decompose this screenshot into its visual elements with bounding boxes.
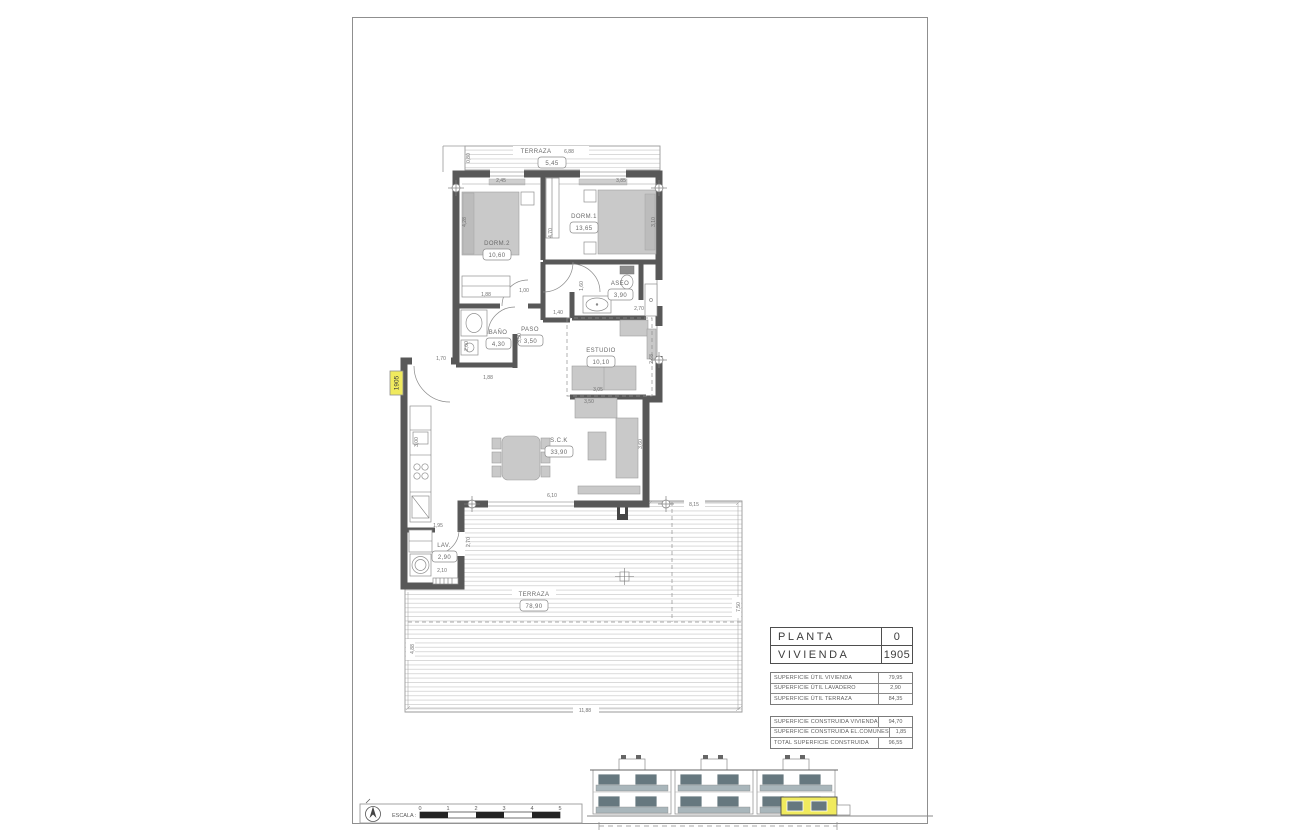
room-label-estudio: ESTUDIO — [586, 348, 615, 354]
scale-bar: ESCALA : 0 1 2 3 4 5 — [360, 799, 582, 823]
room-area: 3,50 — [524, 339, 538, 345]
dimension-label: 1,70 — [436, 356, 446, 362]
dimension-label: 1,60 — [579, 281, 585, 291]
row-value: 84,35 — [878, 694, 912, 704]
room-area: 78,90 — [525, 604, 542, 610]
dimension-label: 8,15 — [689, 502, 699, 508]
row-label: TOTAL SUPERFICIE CONSTRUIDA — [771, 740, 878, 746]
row-label: SUPERFICIE ÚTIL VIVIENDA — [771, 675, 878, 681]
room-area: 4,30 — [492, 342, 506, 348]
surface-table-constructed: SUPERFICIE CONSTRUIDA VIVIENDA 94,70 SUP… — [770, 716, 913, 749]
dimension-label: 3,50 — [584, 399, 594, 405]
scale-tick: 5 — [558, 806, 561, 812]
room-area: 10,60 — [488, 253, 505, 259]
row-value: 96,55 — [878, 738, 912, 748]
window — [490, 168, 524, 179]
dimension-label: 7,50 — [736, 602, 742, 612]
dimension-label: 4,70 — [548, 228, 554, 238]
north-arrow-icon — [366, 799, 381, 822]
dimension-label: 4,88 — [410, 644, 416, 654]
dimension-label: 3,00 — [414, 437, 420, 447]
room-area: 2,90 — [438, 555, 452, 561]
title-table: PLANTA 0 VIVIENDA 1905 — [770, 627, 913, 664]
row-value: 79,95 — [878, 673, 912, 683]
room-area: 5,45 — [545, 161, 559, 167]
title-label: PLANTA — [771, 631, 881, 643]
dimension-label: 11,88 — [579, 708, 591, 714]
room-label-terraza-top: TERRAZA — [521, 149, 552, 155]
room-label-terraza-main: TERRAZA — [519, 592, 550, 598]
dimension-label: 1,40 — [553, 310, 563, 316]
room-label-dorm2: DORM.2 — [484, 241, 510, 247]
dimension-label: 3,85 — [616, 178, 626, 184]
dimension-label: 2,00 — [464, 341, 470, 351]
table-row: SUPERFICIE ÚTIL VIVIENDA 79,95 — [771, 673, 912, 683]
dimension-label: 1,00 — [519, 288, 529, 294]
room-label-aseo: ASEO — [611, 281, 629, 287]
room-label-sck: S.C.K — [550, 438, 568, 444]
dimension-label: 6,10 — [547, 493, 557, 499]
room-label-paso: PASO — [521, 327, 539, 333]
room-label-lav: LAV. — [437, 543, 451, 549]
table-row: SUPERFICIE ÚTIL LAVADERO 2,90 — [771, 683, 912, 694]
dimension-label: 4,28 — [462, 217, 468, 227]
room-area: 33,90 — [550, 450, 567, 456]
drawing-page: 1905 TERRAZA 5,45 DORM.2 10,60 DORM.1 13… — [0, 0, 1290, 840]
row-value: 2,90 — [878, 684, 912, 694]
title-row-planta: PLANTA 0 — [771, 628, 912, 645]
dimension-label: 3,05 — [593, 387, 603, 393]
row-label: SUPERFICIE ÚTIL LAVADERO — [771, 685, 878, 691]
dimension-label: 1,95 — [433, 523, 443, 529]
unit-tag-number: 1905 — [394, 375, 401, 390]
unit-tag: 1905 — [390, 371, 403, 395]
dimension-label: 1,88 — [483, 375, 493, 381]
scale-tick: 4 — [530, 806, 533, 812]
dimension-label: 3,10 — [651, 217, 657, 227]
row-label: SUPERFICIE CONSTRUIDA VIVIENDA — [771, 719, 878, 725]
dimension-label: 3,50 — [517, 333, 523, 343]
surface-table-util: SUPERFICIE ÚTIL VIVIENDA 79,95 SUPERFICI… — [770, 672, 913, 705]
table-row: SUPERFICIE ÚTIL TERRAZA 84,35 — [771, 693, 912, 704]
floor-plan-drawing: 1905 TERRAZA 5,45 DORM.2 10,60 DORM.1 13… — [0, 0, 1290, 840]
room-area: 10,10 — [592, 360, 609, 366]
dimension-label: 6,88 — [564, 149, 574, 155]
table-row: SUPERFICIE CONSTRUIDA VIVIENDA 94,70 — [771, 717, 912, 727]
room-area: 13,65 — [575, 226, 592, 232]
highlighted-unit — [781, 797, 850, 815]
scale-label: ESCALA : — [392, 813, 417, 819]
table-row: SUPERFICIE CONSTRUIDA EL.COMUNES 1,85 — [771, 727, 912, 738]
scale-tick: 0 — [418, 806, 421, 812]
scale-tick: 2 — [474, 806, 477, 812]
room-label-bano: BAÑO — [489, 329, 508, 336]
title-value: 0 — [881, 628, 912, 645]
dimension-label: 3,60 — [638, 439, 644, 449]
table-row: TOTAL SUPERFICIE CONSTRUIDA 96,55 — [771, 737, 912, 748]
scale-tick: 1 — [446, 806, 449, 812]
row-label: SUPERFICIE ÚTIL TERRAZA — [771, 696, 878, 702]
room-label-dorm1: DORM.1 — [571, 214, 597, 220]
title-label: VIVIENDA — [771, 649, 881, 661]
row-value: 94,70 — [878, 717, 912, 727]
dimension-label: 1,88 — [481, 292, 491, 298]
dimension-label: 2,70 — [634, 306, 644, 312]
scale-tick: 3 — [502, 806, 505, 812]
dimension-label: 2,70 — [466, 537, 472, 547]
terrace-window — [488, 499, 574, 509]
dimension-label: 2,45 — [496, 178, 506, 184]
dimension-label: 2,68 — [649, 354, 655, 364]
title-value: 1905 — [881, 646, 912, 663]
dimension-label: 2,10 — [437, 568, 447, 574]
title-row-vivienda: VIVIENDA 1905 — [771, 645, 912, 663]
building-elevation — [587, 755, 933, 830]
row-label: SUPERFICIE CONSTRUIDA EL.COMUNES — [771, 729, 889, 735]
row-value: 1,85 — [889, 728, 912, 738]
room-area: 3,90 — [614, 293, 628, 299]
dimension-label: 0,80 — [466, 153, 472, 163]
